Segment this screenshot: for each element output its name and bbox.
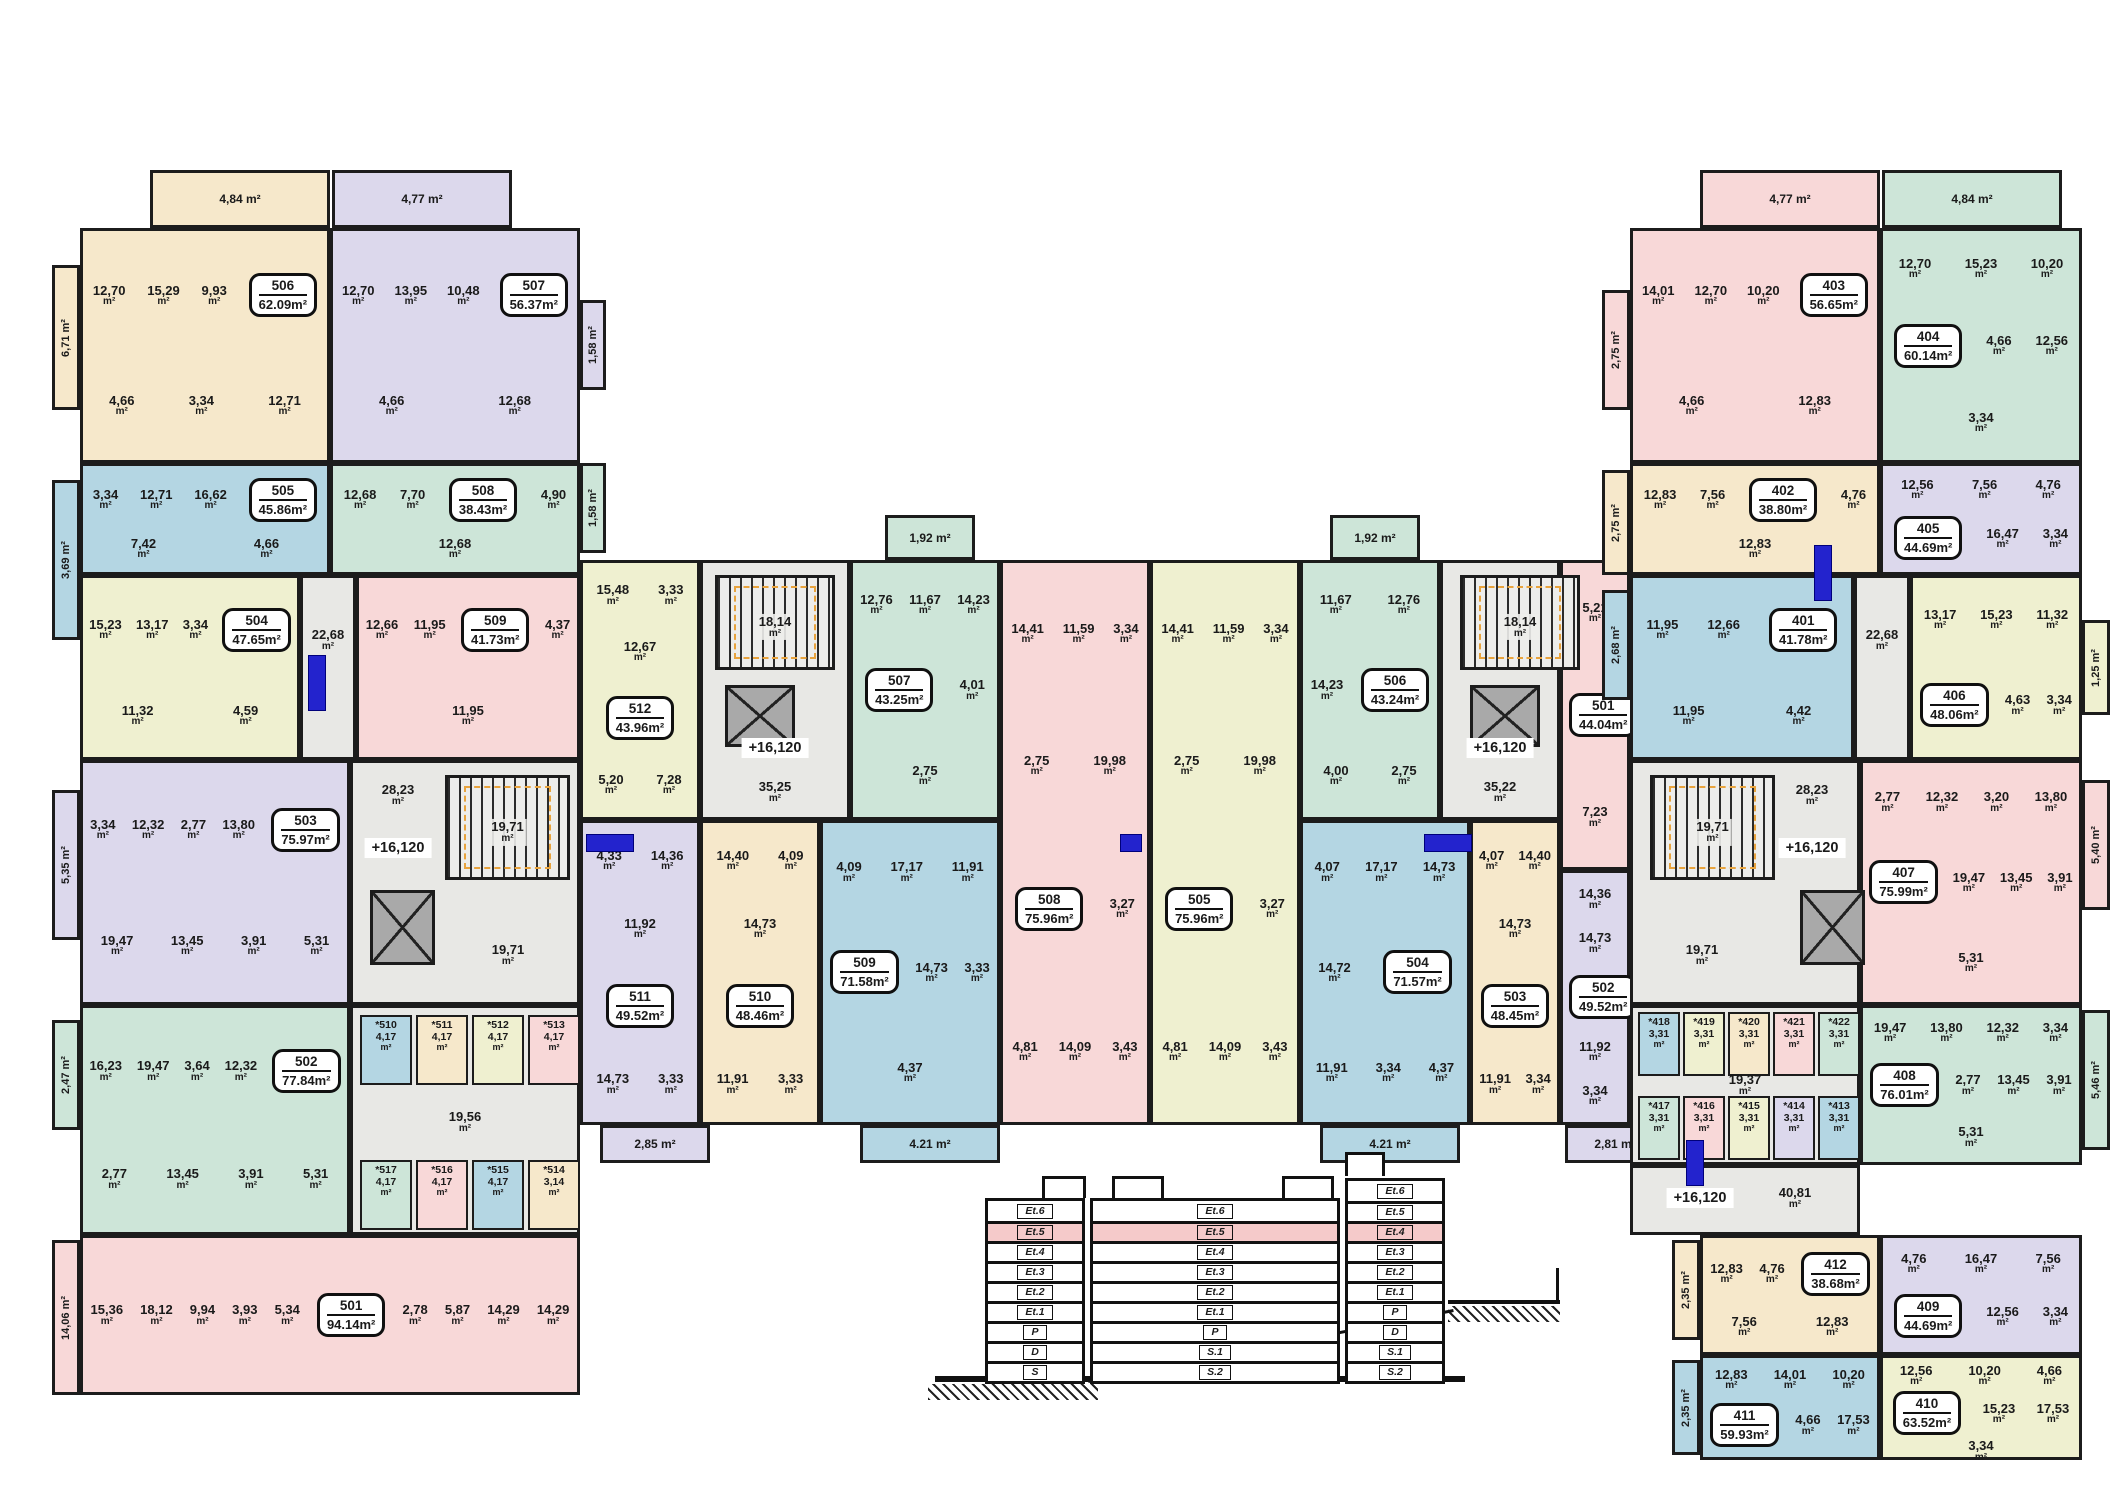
storage-id: *512: [474, 1020, 522, 1032]
room-area-value: 14,40: [717, 849, 750, 862]
balcony-area-label: 14,06 m²: [60, 1295, 72, 1339]
apartment-area: 44.69m²: [1904, 539, 1952, 555]
square-meter-unit: m²: [624, 653, 657, 663]
room-label: 4,76m²: [1901, 1252, 1926, 1275]
block-apt-504: 15,23m²13,17m²3,34m²50447.65m²11,32m²4,5…: [80, 575, 300, 760]
room-label: 9,93m²: [202, 284, 227, 307]
room-label: 14,40m²: [717, 849, 750, 872]
elevator-tag: [308, 655, 326, 711]
room-label: 11,91m²: [717, 1072, 749, 1095]
storage-id: *514: [530, 1165, 578, 1177]
room-area-value: 3,27: [1260, 897, 1285, 910]
storage-id: *420: [1730, 1017, 1768, 1029]
square-meter-unit: m²: [136, 631, 169, 641]
square-meter-unit: m²: [1729, 1087, 1762, 1098]
room-area-value: 4,66: [379, 394, 404, 407]
room-label: 12,70m²: [1899, 257, 1932, 280]
room-area-value: 12,68: [498, 394, 531, 407]
apartment-area: 49.52m²: [616, 1007, 664, 1023]
room-label: 3,34m²: [1582, 1084, 1607, 1107]
room-label: 10,20m²: [1747, 284, 1780, 307]
storage-cell-420: *4203,31m²: [1728, 1012, 1770, 1076]
room-area-value: 4,76: [1901, 1252, 1926, 1265]
room-label: 17,17m²: [1365, 860, 1398, 883]
balcony-area-label: 4.21 m²: [863, 1128, 997, 1160]
block-apt-509c: 4,09m²17,17m²11,91m²50971.58m²14,73m²3,3…: [820, 820, 1000, 1125]
square-meter-unit: m²: [1063, 635, 1095, 645]
storage-id: *415: [1730, 1101, 1768, 1113]
square-meter-unit: m²: [1958, 964, 1983, 974]
square-meter-unit: m²: [1262, 1053, 1287, 1063]
room-area-value: 3,33: [658, 1072, 683, 1085]
balcony-area-label: 2,35 m²: [1680, 1389, 1692, 1427]
block-apt-406: 13,17m²15,23m²11,32m²40648.06m²4,63m²3,3…: [1910, 575, 2082, 760]
apartment-number: 506: [259, 278, 307, 296]
room-label: 2,75m²: [1174, 754, 1199, 777]
apartment-badge: 40460.14m²: [1894, 324, 1962, 368]
room-label: 3,34m²: [1376, 1061, 1401, 1084]
room-label: 11,95m²: [452, 704, 484, 727]
room-area-value: 3,34: [90, 818, 115, 831]
apartment-rooms: 12,56m²10,20m²4,66m²41063.52m²15,23m²17,…: [1883, 1358, 2079, 1457]
room-label: 12,68m²: [498, 394, 531, 417]
square-meter-unit: m²: [414, 631, 446, 641]
room-area-value: 4,59: [233, 704, 258, 717]
storage-id: *413: [1820, 1101, 1858, 1113]
room-label: 11,59m²: [1213, 622, 1245, 645]
area-label: 19,37m²: [1729, 1073, 1762, 1097]
room-label: 12,83m²: [1710, 1262, 1743, 1285]
elevation-column-right: Et.6Et.5Et.4Et.3Et.2Et.1PDS.1S.2: [1345, 1178, 1445, 1384]
square-meter-unit: m²: [1739, 550, 1772, 560]
room-area-value: 14,73: [1423, 860, 1456, 873]
apartment-rooms: 4,33m²14,36m²11,92m²51149.52m²14,73m²3,3…: [583, 823, 697, 1122]
apartment-number: 412: [1811, 1257, 1859, 1275]
room-label: 11,95m²: [1673, 704, 1705, 727]
elevation-floor-row: Et.5: [988, 1221, 1082, 1241]
apartment-badge: 50277.84m²: [272, 1049, 340, 1093]
square-meter-unit: m²: [778, 862, 803, 872]
area-label: 35,25m²: [759, 780, 792, 804]
room-area-value: 4,76: [1841, 488, 1866, 501]
room-label: 16,62m²: [194, 488, 227, 511]
square-meter-unit: m²: [1642, 297, 1675, 307]
elevation-floor-label: Et.5: [1377, 1205, 1412, 1220]
room-area-value: 4,37: [545, 618, 570, 631]
block-apt-505: 3,34m²12,71m²16,62m²50545.86m²7,42m²4,66…: [80, 463, 330, 575]
square-meter-unit: m²: [1504, 629, 1537, 640]
room-label: 12,32m²: [1926, 790, 1959, 813]
room-area-value: 12,32: [1926, 790, 1959, 803]
room-area-value: 13,17: [1924, 608, 1957, 621]
area-value: 19,56: [449, 1110, 482, 1124]
block-apt-507: 12,70m²13,95m²10,48m²50756.37m²4,66m²12,…: [330, 228, 580, 463]
room-area-value: 5,20: [598, 773, 623, 786]
block-apt-404: 12,70m²15,23m²10,20m²40460.14m²4,66m²12,…: [1880, 228, 2082, 463]
room-area-value: 11,67: [1320, 593, 1352, 606]
apartment-rooms: 15,23m²13,17m²3,34m²50447.65m²11,32m²4,5…: [83, 578, 297, 757]
apartment-rooms: 12,83m²14,01m²10,20m²41159.93m²4,66m²17,…: [1703, 1358, 1877, 1457]
square-meter-unit: m²: [254, 550, 279, 560]
apartment-badge: 50447.65m²: [222, 608, 290, 652]
storage-cell-514: *5143,14m²: [528, 1160, 580, 1230]
room-label: 5,34m²: [275, 1303, 300, 1326]
elevation-floor-row: P: [1093, 1321, 1337, 1341]
elevation-floor-row: Et.2: [988, 1281, 1082, 1301]
room-label: 3,34m²: [2043, 1305, 2068, 1328]
elevation-floor-row: Et.4: [1093, 1241, 1337, 1261]
square-meter-unit: m²: [132, 831, 165, 841]
room-area-value: 2,78: [402, 1303, 427, 1316]
elevation-floor-label: Et.6: [1017, 1204, 1052, 1219]
square-meter-unit: m²: [1926, 804, 1959, 814]
square-meter-unit: m²: [474, 1188, 522, 1198]
square-meter-unit: m²: [1365, 874, 1398, 884]
room-area-value: 9,93: [202, 284, 227, 297]
room-label: 12,32m²: [1986, 1021, 2019, 1044]
square-meter-unit: m²: [952, 874, 984, 884]
elevation-floor-row: S: [988, 1361, 1082, 1381]
square-meter-unit: m²: [717, 862, 750, 872]
square-meter-unit: m²: [1059, 1053, 1092, 1063]
room-area-value: 3,34: [1376, 1061, 1401, 1074]
square-meter-unit: m²: [1710, 1275, 1743, 1285]
area-label: 28,23m²: [382, 783, 415, 807]
square-meter-unit: m²: [2046, 1087, 2071, 1097]
apartment-area: 77.84m²: [282, 1072, 330, 1088]
room-label: 14,01m²: [1774, 1368, 1807, 1391]
apartment-number: 407: [1879, 865, 1927, 883]
square-meter-unit: m²: [1320, 606, 1352, 616]
square-meter-unit: m²: [2036, 347, 2069, 357]
room-area-value: 17,17: [890, 860, 923, 873]
block-balcony-235-a: 2,35 m²: [1672, 1240, 1700, 1340]
ground-line-right: [1448, 1300, 1560, 1304]
square-meter-unit: m²: [1901, 491, 1934, 501]
block-balcony-275-a: 2,75 m²: [1602, 290, 1630, 410]
block-apt-506c: 11,67m²12,76m²14,23m²50643.24m²4,00m²2,7…: [1300, 560, 1440, 820]
square-meter-unit: m²: [957, 606, 990, 616]
elevation-floor-label: Et.5: [1197, 1225, 1232, 1240]
room-label: 11,91m²: [1479, 1072, 1511, 1095]
apartment-area: 56.37m²: [510, 296, 558, 312]
room-label: 2,77m²: [1955, 1073, 1980, 1096]
room-area-value: 12,71: [268, 394, 301, 407]
room-area-value: 7,56: [1972, 478, 1997, 491]
room-area-value: 4,76: [1759, 1262, 1784, 1275]
room-label: 16,47m²: [1986, 527, 2019, 550]
apartment-number: 509: [840, 955, 888, 973]
room-label: 14,23m²: [957, 593, 990, 616]
square-meter-unit: m²: [1984, 804, 2009, 814]
elevation-floor-label: Et.4: [1197, 1245, 1232, 1260]
square-meter-unit: m²: [717, 1086, 749, 1096]
apartment-number: 408: [1880, 1068, 1928, 1086]
apartment-badge: 50756.37m²: [500, 273, 568, 317]
elevation-column-left: Et.6Et.5Et.4Et.3Et.2Et.1PDS: [985, 1198, 1085, 1384]
storage-id: *511: [418, 1020, 466, 1032]
apartment-area: 43.24m²: [1371, 691, 1419, 707]
room-area-value: 10,20: [1747, 284, 1780, 297]
room-label: 3,34m²: [2047, 693, 2072, 716]
room-label: 15,29m²: [147, 284, 180, 307]
room-label: 7,70m²: [400, 488, 425, 511]
room-label: 3,33m²: [778, 1072, 803, 1095]
room-label: 14,29m²: [537, 1303, 570, 1326]
area-value: 18,14: [1504, 615, 1537, 629]
room-area-value: 4,37: [1429, 1061, 1454, 1074]
square-meter-unit: m²: [909, 606, 941, 616]
room-label: 5,31m²: [1958, 1125, 1983, 1148]
elevator-icon: [1800, 890, 1865, 965]
square-meter-unit: m²: [2043, 1034, 2068, 1044]
room-area-value: 5,31: [1958, 1125, 1983, 1138]
square-meter-unit: m²: [492, 957, 525, 968]
grade-line: [1088, 1309, 1454, 1383]
room-label: 14,73m²: [744, 917, 777, 940]
room-area-value: 4,66: [1795, 1413, 1820, 1426]
square-meter-unit: m²: [1647, 631, 1679, 641]
room-label: 12,71m²: [140, 488, 173, 511]
room-area-value: 4,37: [897, 1061, 922, 1074]
square-meter-unit: m²: [778, 1086, 803, 1096]
room-area-value: 9,94: [190, 1303, 215, 1316]
room-label: 11,91m²: [1316, 1061, 1348, 1084]
balcony-area-label: 1,92 m²: [888, 518, 972, 557]
square-meter-unit: m²: [1311, 692, 1344, 702]
square-meter-unit: m²: [1965, 1265, 1998, 1275]
apartment-number: 503: [281, 813, 329, 831]
elevation-floor-label: Et.3: [1017, 1265, 1052, 1280]
room-label: 14,72m²: [1318, 961, 1351, 984]
square-meter-unit: m²: [1775, 1040, 1813, 1050]
room-area-value: 14,73: [915, 961, 948, 974]
elevation-floor-row: P: [1348, 1301, 1442, 1321]
area-value: 22,68: [1866, 628, 1899, 642]
square-meter-unit: m²: [1700, 501, 1725, 511]
room-area-value: 3,34: [2047, 693, 2072, 706]
apartment-area: 76.01m²: [1880, 1086, 1928, 1102]
elevation-floor-label: Et.3: [1197, 1265, 1232, 1280]
apartment-area: 49.52m²: [1579, 998, 1627, 1014]
storage-cell-511: *5114,17m²: [416, 1015, 468, 1085]
staircase-icon: 19,71m²: [1650, 775, 1775, 880]
square-meter-unit: m²: [184, 1073, 209, 1083]
apartment-area: 38.68m²: [1811, 1275, 1859, 1291]
area-label: 22,68m²: [1866, 628, 1899, 652]
storage-id: *418: [1640, 1017, 1678, 1029]
square-meter-unit: m²: [1243, 767, 1276, 777]
room-area-value: 4,76: [2036, 478, 2061, 491]
room-label: 3,34m²: [1968, 411, 1993, 434]
balcony-area-label: 2,85 m²: [603, 1128, 707, 1160]
room-label: 12,70m²: [93, 284, 126, 307]
square-meter-unit: m²: [1986, 1034, 2019, 1044]
block-apt-502c: 14,36m²14,73m²50249.52m²11,92m²3,34m²: [1560, 870, 1630, 1125]
storage-cell-517: *5174,17m²: [360, 1160, 412, 1230]
apartment-area: 75.97m²: [281, 831, 329, 847]
room-label: 4,81m²: [1012, 1040, 1037, 1063]
room-label: 19,47m²: [137, 1059, 170, 1082]
apartment-rooms: 11,67m²12,76m²14,23m²50643.24m²4,00m²2,7…: [1303, 563, 1437, 817]
apartment-number: 501: [327, 1298, 375, 1316]
block-balcony-369: 3,69 m²: [52, 480, 80, 640]
room-label: 11,91m²: [952, 860, 984, 883]
room-label: 4,59m²: [233, 704, 258, 727]
square-meter-unit: m²: [1901, 1265, 1926, 1275]
floor-plan-canvas: 4,84 m²4,77 m²12,70m²15,29m²9,93m²50662.…: [0, 0, 2117, 1497]
block-balcony-192-b: 1,92 m²: [1330, 515, 1420, 560]
square-meter-unit: m²: [1953, 884, 1986, 894]
block-apt-403: 14,01m²12,70m²10,20m²40356.65m²4,66m²12,…: [1630, 228, 1880, 463]
block-balcony-421-a: 4.21 m²: [860, 1125, 1000, 1163]
square-meter-unit: m²: [166, 1181, 199, 1191]
square-meter-unit: m²: [1429, 1074, 1454, 1084]
block-apt-412: 12,83m²4,76m²41238.68m²7,56m²12,83m²: [1700, 1235, 1880, 1355]
room-area-value: 7,23: [1582, 805, 1607, 818]
apartment-rooms: 4,07m²17,17m²14,73m²14,72m²50471.57m²11,…: [1303, 823, 1467, 1122]
room-label: 16,47m²: [1965, 1252, 1998, 1275]
block-balcony-477-left: 4,77 m²: [332, 170, 512, 228]
room-area-value: 3,34: [1525, 1072, 1550, 1085]
square-meter-unit: m²: [222, 831, 255, 841]
area-value: 18,14: [759, 615, 792, 629]
square-meter-unit: m²: [1986, 540, 2019, 550]
block-balcony-477-right: 4,77 m²: [1700, 170, 1880, 228]
block-corridor-right-wing: [1854, 575, 1910, 760]
room-label: 3,34m²: [183, 618, 208, 641]
room-area-value: 12,83: [1739, 537, 1772, 550]
square-meter-unit: m²: [140, 1317, 173, 1327]
room-label: 3,27m²: [1260, 897, 1285, 920]
square-meter-unit: m²: [1900, 1377, 1933, 1387]
room-area-value: 12,83: [1816, 1315, 1849, 1328]
elevation-floor-label: Et.2: [1197, 1285, 1232, 1300]
room-label: 15,36m²: [91, 1303, 124, 1326]
square-meter-unit: m²: [1899, 270, 1932, 280]
block-apt-505c: 14,41m²11,59m²3,34m²2,75m²19,98m²50575.9…: [1150, 560, 1300, 1125]
apartment-number: 403: [1810, 278, 1858, 296]
room-area-value: 12,68: [344, 488, 377, 501]
apartment-badge: 50348.45m²: [1481, 984, 1549, 1028]
room-label: 7,28m²: [656, 773, 681, 796]
room-label: 4,07m²: [1315, 860, 1340, 883]
room-label: 12,83m²: [1644, 488, 1677, 511]
apartment-area: 75.96m²: [1175, 910, 1223, 926]
apartment-badge: 40141.78m²: [1769, 608, 1837, 652]
square-meter-unit: m²: [183, 631, 208, 641]
block-balcony-192-a: 1,92 m²: [885, 515, 975, 560]
room-area-value: 7,28: [656, 773, 681, 786]
square-meter-unit: m²: [202, 297, 227, 307]
room-label: 4,37m²: [545, 618, 570, 641]
square-meter-unit: m²: [1110, 910, 1135, 920]
square-meter-unit: m²: [598, 786, 623, 796]
room-label: 4,00m²: [1323, 764, 1348, 787]
elevation-floor-row: S.1: [1348, 1341, 1442, 1361]
area-label: 19,71m²: [1686, 943, 1719, 967]
square-meter-unit: m²: [109, 407, 134, 417]
block-apt-509: 12,66m²11,95m²50941.73m²4,37m²11,95m²: [356, 575, 580, 760]
room-label: 19,47m²: [101, 934, 134, 957]
apartment-rooms: 12,66m²11,95m²50941.73m²4,37m²11,95m²: [359, 578, 577, 757]
staircase-area-label: 19,71m²: [488, 819, 527, 845]
room-label: 11,92m²: [1579, 1040, 1611, 1063]
room-area-value: 3,91: [2046, 1073, 2071, 1086]
room-area-value: 14,09: [1209, 1040, 1242, 1053]
block-apt-511c: 4,33m²14,36m²11,92m²51149.52m²14,73m²3,3…: [580, 820, 700, 1125]
room-label: 3,91m²: [2047, 871, 2072, 894]
room-area-value: 5,31: [303, 1167, 328, 1180]
square-meter-unit: m²: [651, 862, 684, 872]
square-meter-unit: m²: [400, 501, 425, 511]
apartment-number: 504: [232, 613, 280, 631]
balcony-area-label: 2,75 m²: [1610, 331, 1622, 369]
room-area-value: 4,90: [541, 488, 566, 501]
storage-cell-422: *4223,31m²: [1818, 1012, 1860, 1076]
square-meter-unit: m²: [1316, 1074, 1348, 1084]
storage-id: *510: [362, 1020, 410, 1032]
room-label: 11,32m²: [122, 704, 154, 727]
room-area-value: 12,83: [1798, 394, 1831, 407]
apartment-badge: 50545.86m²: [249, 478, 317, 522]
room-area-value: 13,95: [395, 284, 428, 297]
apartment-badge: 40648.06m²: [1920, 683, 1988, 727]
room-label: 11,59m²: [1063, 622, 1095, 645]
apartment-rooms: 14,36m²14,73m²50249.52m²11,92m²3,34m²: [1563, 873, 1627, 1122]
room-area-value: 14,36: [1579, 887, 1612, 900]
room-label: 12,56m²: [1901, 478, 1934, 501]
area-value: 19,71: [491, 820, 524, 834]
block-balcony-235-b: 2,35 m²: [1672, 1360, 1700, 1455]
room-label: 4,37m²: [897, 1061, 922, 1084]
square-meter-unit: m²: [2043, 540, 2068, 550]
block-apt-504c: 4,07m²17,17m²14,73m²14,72m²50471.57m²11,…: [1300, 820, 1470, 1125]
room-area-value: 13,45: [171, 934, 204, 947]
square-meter-unit: m²: [1113, 635, 1138, 645]
room-area-value: 12,32: [225, 1059, 258, 1072]
block-terrace-1406: 14,06 m²: [52, 1240, 80, 1395]
square-meter-unit: m²: [1837, 1427, 1870, 1437]
square-meter-unit: m²: [1093, 767, 1126, 777]
room-label: 19,98m²: [1093, 754, 1126, 777]
elevation-floor-row: Et.2: [1348, 1261, 1442, 1281]
block-balcony-275-b: 2,75 m²: [1602, 470, 1630, 575]
apartment-area: 94.14m²: [327, 1316, 375, 1332]
room-area-value: 13,45: [166, 1167, 199, 1180]
apartment-area: 56.65m²: [1810, 296, 1858, 312]
apartment-rooms: 12,68m²7,70m²50838.43m²4,90m²12,68m²: [333, 466, 577, 572]
block-balcony-125: 1,25 m²: [2082, 620, 2110, 715]
room-area-value: 4,66: [254, 537, 279, 550]
block-apt-408: 19,47m²13,80m²12,32m²3,34m²40876.01m²2,7…: [1860, 1005, 2082, 1165]
elevation-floor-label: Et.1: [1377, 1285, 1412, 1300]
room-label: 4,42m²: [1786, 704, 1811, 727]
square-meter-unit: m²: [445, 1317, 470, 1327]
apartment-number: 505: [1175, 892, 1223, 910]
room-label: 3,34m²: [90, 818, 115, 841]
room-label: 4,33m²: [597, 849, 622, 872]
apartment-area: 48.06m²: [1930, 706, 1978, 722]
grade-flag: [1556, 1268, 1559, 1304]
room-label: 5,31m²: [1958, 951, 1983, 974]
balcony-area-label: 2,47 m²: [60, 1056, 72, 1094]
room-label: 3,93m²: [232, 1303, 257, 1326]
storage-cell-421: *4213,31m²: [1773, 1012, 1815, 1076]
room-area-value: 14,41: [1011, 622, 1044, 635]
square-meter-unit: m²: [597, 862, 622, 872]
room-area-value: 14,73: [1579, 931, 1612, 944]
